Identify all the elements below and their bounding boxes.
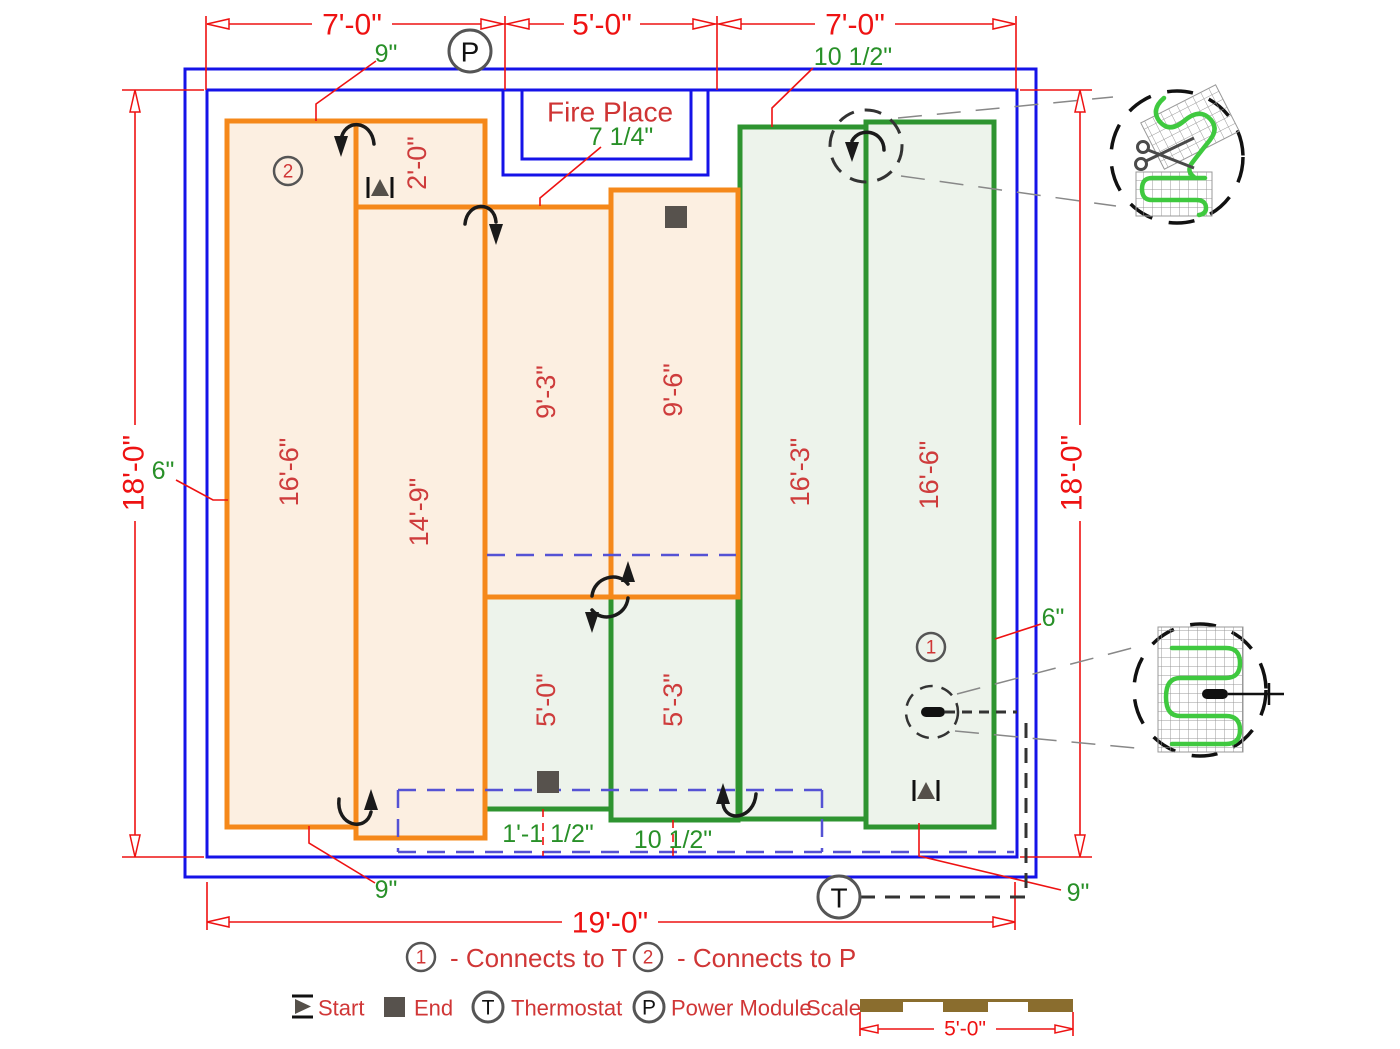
mat-length-label: 5'-3" [658, 673, 688, 727]
sensor-splice-icon [1202, 689, 1228, 699]
thermostat-marker: T [818, 876, 860, 918]
mat-length-label: 14'-9" [404, 478, 434, 547]
plan-drawing: 7'-0" 5'-0" 7'-0" 18'-0" 18'-0" 19'-0" 1… [0, 0, 1400, 1049]
svg-text:2: 2 [283, 162, 294, 183]
end-icon [665, 206, 687, 228]
svg-text:2: 2 [643, 948, 654, 969]
legend-thermostat: T Thermostat [473, 992, 622, 1022]
offset-lead-left: 1'-1 1/2" [502, 820, 593, 848]
start-icon [292, 996, 313, 1017]
mat-length-label: 16'-6" [274, 438, 304, 507]
dim-left: 18'-0" [118, 435, 151, 511]
dim-top-right: 7'-0" [825, 9, 885, 42]
svg-text:Power Module: Power Module [671, 996, 812, 1021]
dim-top-mid: 5'-0" [572, 9, 632, 42]
mat-length-label: 5'-0" [531, 673, 561, 727]
legend-connects-1-label: - Connects to T [450, 943, 627, 973]
scale-dim: 5'-0" [944, 1018, 986, 1041]
power-module-marker: P [449, 30, 491, 72]
mat-length-label: 16'-3" [785, 438, 815, 507]
dim-top-left: 7'-0" [322, 9, 382, 42]
svg-text:T: T [830, 883, 847, 914]
legend-start: Start [292, 996, 364, 1021]
offset-bottom-right: 9" [1067, 879, 1090, 907]
mat-length-label: 9'-3" [531, 365, 561, 419]
offset-lead-right: 10 1/2" [634, 826, 712, 854]
offset-left: 6" [152, 457, 175, 485]
scale-label: Scale [806, 996, 861, 1021]
offset-top-left: 9" [375, 40, 398, 68]
mat-length-label: 2'-0" [402, 136, 432, 190]
end-icon [384, 997, 405, 1017]
legend-connects-2-label: - Connects to P [677, 943, 856, 973]
dimension-right: 18'-0" [1020, 90, 1092, 857]
svg-text:Start: Start [318, 996, 364, 1021]
offset-right: 6" [1042, 604, 1065, 632]
legend-connects-2: 2 - Connects to P [634, 943, 856, 973]
offset-top-right: 10 1/2" [814, 43, 892, 71]
dim-bottom: 19'-0" [572, 907, 648, 940]
svg-text:End: End [414, 996, 453, 1021]
dimension-top: 7'-0" 5'-0" 7'-0" [206, 9, 1016, 91]
detail-view-sensor [1134, 624, 1284, 756]
offset-fireplace: 7 1/4" [589, 123, 653, 151]
legend-power-module: P Power Module [634, 992, 812, 1022]
legend-scale: Scale 5'-0" [806, 996, 1073, 1041]
svg-text:1: 1 [926, 638, 937, 659]
mat-length-label: 9'-6" [658, 363, 688, 417]
svg-text:1: 1 [416, 948, 427, 969]
svg-text:P: P [642, 997, 656, 1020]
end-icon [537, 771, 559, 793]
dimension-bottom: 19'-0" [207, 882, 1015, 940]
sensor-splice-icon [921, 707, 945, 717]
svg-text:T: T [482, 997, 495, 1020]
floor-heating-plan: 7'-0" 5'-0" 7'-0" 18'-0" 18'-0" 19'-0" 1… [0, 0, 1400, 1049]
leader-top-right [772, 68, 813, 127]
legend-connects-1: 1 - Connects to T [407, 943, 627, 973]
detail-view-cut-mat [1111, 85, 1243, 223]
legend-end: End [384, 996, 453, 1021]
mat-length-label: 16'-6" [914, 441, 944, 510]
dim-right: 18'-0" [1056, 435, 1089, 511]
svg-text:Thermostat: Thermostat [511, 996, 622, 1021]
scale-bar [860, 999, 1073, 1012]
offset-bottom-left: 9" [375, 876, 398, 904]
svg-text:P: P [461, 37, 480, 68]
